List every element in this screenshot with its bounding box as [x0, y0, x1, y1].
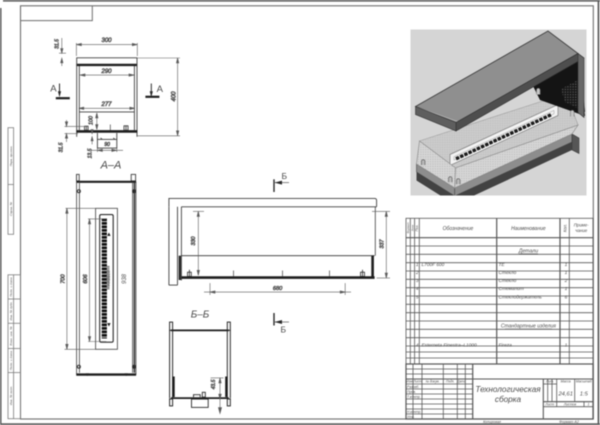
svg-text:90: 90	[104, 142, 110, 148]
svg-text:Инв. № дубл.: Инв. № дубл.	[9, 301, 13, 320]
svg-text:337: 337	[380, 239, 386, 249]
svg-text:43.5: 43.5	[211, 379, 217, 389]
svg-text:Т.контр.: Т.контр.	[407, 395, 421, 399]
svg-text:чание: чание	[575, 228, 588, 233]
svg-text:13.5: 13.5	[87, 148, 93, 158]
svg-text:Лист: Лист	[412, 380, 422, 384]
svg-text:24,61: 24,61	[557, 392, 573, 398]
svg-text:5: 5	[416, 294, 419, 300]
svg-text:Б: Б	[282, 171, 288, 181]
svg-text:Детали: Детали	[518, 248, 538, 254]
svg-text:300: 300	[101, 38, 112, 44]
svg-text:Стандартные изделия: Стандартные изделия	[501, 324, 556, 330]
svg-text:100: 100	[89, 116, 95, 125]
svg-text:Б: Б	[281, 325, 287, 335]
svg-text:Esterneta Finestra–L1000: Esterneta Finestra–L1000	[422, 343, 478, 349]
svg-text:1: 1	[416, 262, 419, 268]
svg-text:Кол.: Кол.	[563, 224, 568, 232]
svg-text:Стекло: Стекло	[499, 278, 517, 284]
svg-text:1:5: 1:5	[580, 392, 589, 398]
svg-text:Подп. и дата: Подп. и дата	[9, 351, 13, 371]
svg-text:Справ. №: Справ. №	[9, 201, 13, 216]
svg-text:Стемалит: Стемалит	[499, 286, 524, 292]
svg-text:Разраб.: Разраб.	[407, 385, 419, 389]
svg-text:330: 330	[191, 237, 197, 246]
svg-text:Подп. и дата: Подп. и дата	[9, 277, 13, 297]
svg-text:1: 1	[565, 286, 568, 292]
svg-text:31.5: 31.5	[58, 142, 64, 152]
svg-text:А–А: А–А	[100, 160, 122, 172]
svg-text:Fireza: Fireza	[499, 343, 513, 349]
svg-text:Стекло: Стекло	[499, 270, 517, 276]
svg-text:2: 2	[415, 270, 419, 276]
svg-text:400: 400	[172, 91, 178, 102]
svg-text:A: A	[157, 84, 164, 95]
svg-text:Формат А2: Формат А2	[559, 420, 579, 424]
svg-text:Поз.: Поз.	[415, 225, 419, 232]
svg-text:290: 290	[100, 69, 112, 75]
svg-text:Обозначение: Обозначение	[443, 226, 474, 232]
svg-text:L700F 600: L700F 600	[422, 262, 445, 268]
svg-text:938: 938	[122, 273, 128, 284]
svg-text:3: 3	[416, 278, 419, 284]
svg-text:6: 6	[565, 294, 568, 300]
svg-text:Б–Б: Б–Б	[191, 310, 210, 321]
svg-text:1: 1	[565, 343, 568, 349]
svg-text:Н.контр.: Н.контр.	[407, 410, 421, 414]
svg-text:Утв.: Утв.	[407, 415, 415, 419]
svg-text:FIREBOX: FIREBOX	[107, 270, 111, 286]
svg-text:Масса: Масса	[561, 380, 571, 384]
svg-text:Масштаб: Масштаб	[576, 380, 592, 384]
svg-text:Зона: Зона	[410, 224, 414, 231]
svg-text:Дата: Дата	[456, 380, 466, 384]
svg-text:Приме-: Приме-	[574, 223, 590, 228]
svg-text:Перв. примен.: Перв. примен.	[9, 146, 13, 167]
svg-text:4: 4	[416, 343, 419, 349]
svg-text:№ докум.: № докум.	[426, 380, 440, 384]
svg-text:700: 700	[60, 273, 66, 283]
svg-text:Лист: Лист	[544, 403, 554, 407]
svg-text:Взам. инв. №: Взам. инв. №	[9, 326, 13, 346]
svg-text:31.5: 31.5	[55, 39, 61, 49]
svg-text:ТЕ: ТЕ	[499, 262, 506, 268]
svg-text:Инв. № подл.: Инв. № подл.	[9, 386, 13, 405]
svg-text:Подп.: Подп.	[446, 380, 455, 384]
svg-text:Пров.: Пров.	[407, 390, 416, 394]
svg-text:Изм: Изм	[407, 380, 414, 384]
svg-text:680: 680	[273, 286, 283, 292]
svg-text:Листов: Листов	[563, 403, 577, 407]
svg-text:A: A	[50, 84, 57, 95]
svg-text:Лит.: Лит.	[545, 380, 554, 384]
svg-text:Наименование: Наименование	[511, 226, 546, 232]
svg-text:Копировал: Копировал	[483, 420, 501, 424]
svg-text:2: 2	[564, 278, 568, 284]
svg-text:277: 277	[100, 102, 112, 108]
svg-text:4: 4	[416, 286, 419, 292]
svg-text:Технологическая: Технологическая	[475, 385, 541, 394]
svg-text:606: 606	[83, 273, 89, 283]
svg-text:1: 1	[565, 270, 568, 276]
svg-text:сборка: сборка	[495, 395, 522, 404]
svg-text:Стеклодержатель: Стеклодержатель	[499, 294, 543, 300]
svg-text:1: 1	[588, 403, 590, 407]
svg-text:1: 1	[565, 262, 568, 268]
